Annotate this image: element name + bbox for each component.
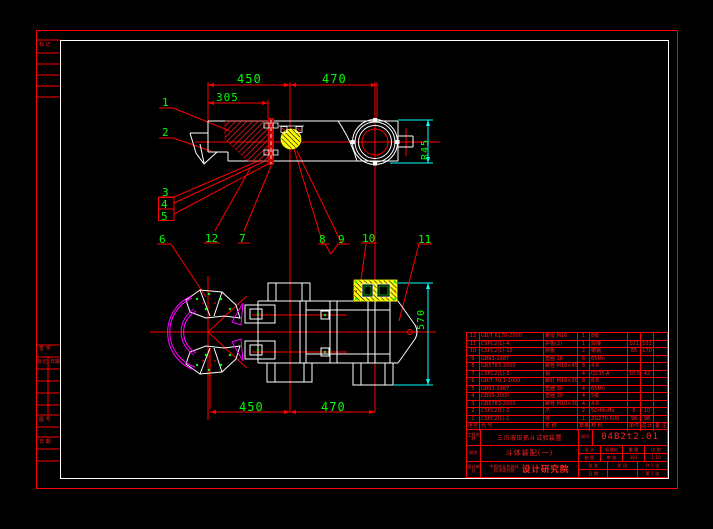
drawing-name: 斗体装配(一) xyxy=(481,446,579,461)
parts-list-cell: CSPC2(1)-2 xyxy=(480,408,544,415)
parts-list-cell: 98 xyxy=(641,416,654,423)
callout-9: 9 xyxy=(338,233,345,246)
drawing-number: 04B2t2.01 xyxy=(593,430,667,445)
parts-list-cell: 8 xyxy=(578,356,590,363)
parts-list-cell: 4 xyxy=(578,401,590,408)
parts-list-cell: GB/T 6170-2000 xyxy=(480,333,544,340)
parts-list-cell: 1 xyxy=(467,416,480,423)
strip-label-top: 标 记 xyxy=(39,43,51,48)
parts-list-row: 12GB/T 6170-2000螺母 M1618级 xyxy=(467,333,667,341)
parts-list-cell: 8.8 xyxy=(590,378,628,385)
sheet-cell: 共 1 张 xyxy=(638,462,667,469)
parts-list-cell xyxy=(654,393,667,400)
drawing-name-label: 图名 xyxy=(467,446,481,461)
parts-list-cell: 5CrMnMo xyxy=(590,408,628,415)
parts-list-cell: CSPC2(1)-4 xyxy=(480,341,544,348)
parts-list-cell: 垫圈 30 xyxy=(544,393,578,400)
parts-list-cell: 98 xyxy=(628,416,641,423)
parts-list-cell xyxy=(628,401,641,408)
sign-cell: 比 例 xyxy=(645,446,667,453)
callout-6: 6 xyxy=(159,233,166,246)
parts-list-row: 10CSPC2(1)-10侧板2铸钢85170 xyxy=(467,348,667,356)
parts-list-cell: 5 xyxy=(467,386,480,393)
parts-list-cell xyxy=(654,356,667,363)
parts-list-cell: 2 xyxy=(578,408,590,415)
parts-list-cell: 3 xyxy=(467,401,480,408)
parts-list-row: 5GB93-1987垫圈 30465Mn xyxy=(467,386,667,394)
strip-label-date1: 日期 xyxy=(50,360,60,365)
sign-cell: 重 量 xyxy=(623,446,645,453)
parts-list-cell: 9 xyxy=(467,356,480,363)
parts-list-row: 4GB95-2000垫圈 3045级 xyxy=(467,393,667,401)
callout-5: 5 xyxy=(161,210,168,223)
parts-list-cell: 4 xyxy=(467,393,480,400)
parts-list-cell: 螺钉 M16×30 xyxy=(544,378,578,385)
sheet-cell: 批 准 xyxy=(579,462,608,469)
parts-list-cell: 4 xyxy=(578,386,590,393)
parts-list-row: 3GB5783-2000螺栓 M10×3044.8 xyxy=(467,401,667,409)
unit-label: 设计单位 xyxy=(467,462,481,477)
company-small: 中国农业机械化 科学研究院 xyxy=(490,465,519,474)
parts-list-cell xyxy=(654,408,667,415)
parts-list-cell: GB95-2000 xyxy=(480,393,544,400)
dim-305: 305 xyxy=(216,91,239,104)
parts-list-cell xyxy=(641,386,654,393)
parts-list-cell: 8 xyxy=(578,363,590,370)
title-block: 工程名称 三爪液压抓斗试验装置 图号 04B2t2.01 图名 斗体装配(一) … xyxy=(466,430,668,478)
callout-12: 12 xyxy=(205,232,218,245)
parts-list-row: 1CSPC2(1)-1体1ZG270-5009898 xyxy=(467,416,667,424)
sheet-cell: 阶 段 xyxy=(608,462,637,469)
callout-10: 10 xyxy=(362,232,375,245)
parts-list-cell xyxy=(641,393,654,400)
sign-cell: 制 图 xyxy=(579,454,601,461)
parts-list-cell: 4 xyxy=(578,393,590,400)
parts-list-cell: 5级 xyxy=(590,393,628,400)
parts-list-cell xyxy=(628,333,641,340)
parts-list-cell: 65Mn xyxy=(590,386,628,393)
parts-list-cell xyxy=(654,333,667,340)
parts-list-row: 2CSPC2(1)-2爪25CrMnMo510 xyxy=(467,408,667,416)
parts-list-cell: 4.8 xyxy=(590,363,628,370)
parts-list-cell xyxy=(654,348,667,355)
dim-570: 570 xyxy=(416,309,427,330)
parts-list-row: 6GB/T 70.1-2000螺钉 M16×3088.8 xyxy=(467,378,667,386)
sign-cell: 设 计 xyxy=(579,446,601,453)
parts-list-cell xyxy=(641,333,654,340)
parts-list-cell: 螺母 M16 xyxy=(544,333,578,340)
parts-list-cell: 85 xyxy=(628,348,641,355)
parts-list-cell: CSPC2(1)-1 xyxy=(480,416,544,423)
parts-list-cell xyxy=(654,386,667,393)
parts-list-row: 8GB5783-2000螺栓 M16×4584.8 xyxy=(467,363,667,371)
parts-list-row: 11CSPC2(1)-4护板(2)1焊接101101 xyxy=(467,341,667,349)
callout-11: 11 xyxy=(418,233,431,246)
parts-list-cell xyxy=(654,416,667,423)
parts-list-cell xyxy=(628,356,641,363)
parts-list-cell xyxy=(654,401,667,408)
parts-list-cell xyxy=(628,393,641,400)
parts-list-cell xyxy=(641,401,654,408)
parts-list-cell: 4 xyxy=(578,371,590,378)
dim-r45: R45 xyxy=(420,139,431,160)
parts-list-cell: 42 xyxy=(641,371,654,378)
parts-list-cell: 垫圈 16 xyxy=(544,356,578,363)
parts-list-cell: GB5783-2000 xyxy=(480,401,544,408)
parts-list-cell: 5 xyxy=(628,408,641,415)
sheet-cell: 日 期 xyxy=(579,470,608,477)
parts-list-cell: 101 xyxy=(628,341,641,348)
parts-list-cell: GB93-1987 xyxy=(480,386,544,393)
parts-list-cell: 10.5 xyxy=(628,371,641,378)
parts-list-cell: 8 xyxy=(467,363,480,370)
parts-list-cell: 侧板 xyxy=(544,348,578,355)
parts-list-cell: 65Mn xyxy=(590,356,628,363)
parts-list-cell xyxy=(641,356,654,363)
drawing-no-label: 图号 xyxy=(579,430,593,445)
parts-list-cell: 体 xyxy=(544,416,578,423)
scale-value: 1:10 xyxy=(645,454,667,461)
company-big: 设计研究院 xyxy=(522,463,570,475)
parts-list-cell: 铸钢 xyxy=(590,348,628,355)
parts-list-cell xyxy=(641,363,654,370)
parts-list-cell: 垫圈 30 xyxy=(544,386,578,393)
crosshatch-block xyxy=(225,118,278,165)
strip-label-mark: 标记 xyxy=(37,360,47,365)
parts-list-cell xyxy=(641,378,654,385)
dim-470-bottom: 470 xyxy=(321,400,346,414)
dim-450-bottom: 450 xyxy=(239,400,264,414)
parts-list-cell: 1 xyxy=(578,333,590,340)
parts-list-cell: 101 xyxy=(641,341,654,348)
callout-2: 2 xyxy=(162,126,169,139)
parts-list-cell: GB/T 70.1-2000 xyxy=(480,378,544,385)
callout-7: 7 xyxy=(239,232,246,245)
parts-list-cell: GB93-1987 xyxy=(480,356,544,363)
parts-list-cell: 爪 xyxy=(544,408,578,415)
sheet-cell xyxy=(608,470,637,477)
company-cell: 中国农业机械化 科学研究院 设计研究院 xyxy=(481,462,579,477)
parts-list-cell: 1 xyxy=(578,416,590,423)
parts-list-cell: 1 xyxy=(578,341,590,348)
parts-list-cell: 护板(2) xyxy=(544,341,578,348)
sign-cell: 标准化 xyxy=(601,446,623,453)
callout-1: 1 xyxy=(162,96,169,109)
parts-list-cell xyxy=(654,341,667,348)
sign-cell: 审 核 xyxy=(601,454,623,461)
parts-list-cell: 2 xyxy=(578,348,590,355)
parts-list-cell: 12 xyxy=(467,333,480,340)
parts-list-cell: 螺栓 M16×45 xyxy=(544,363,578,370)
cad-canvas[interactable]: 450 470 305 R45 450 470 570 1 2 3 4 5 6 … xyxy=(0,0,713,529)
parts-list-cell xyxy=(628,378,641,385)
signature-grid: 设 计 标准化 重 量 比 例 制 图 审 核 391 1:10 xyxy=(579,446,667,461)
dim-450-top: 450 xyxy=(237,72,262,86)
strip-label-drawingno: 图 号 xyxy=(39,418,51,423)
parts-list-row: 9GB93-1987垫圈 16865Mn xyxy=(467,356,667,364)
parts-list-cell: 170 xyxy=(641,348,654,355)
parts-list: 12GB/T 6170-2000螺母 M1618级11CSPC2(1)-4护板(… xyxy=(466,332,668,430)
parts-list-cell: GB5783-2000 xyxy=(480,363,544,370)
parts-list-cell: 焊接 xyxy=(590,341,628,348)
parts-list-cell: 10 xyxy=(641,408,654,415)
piston-circle xyxy=(279,126,304,149)
counterweight-block xyxy=(354,280,397,301)
parts-list-cell: 4.8 xyxy=(590,401,628,408)
parts-list-cell: 8 xyxy=(578,378,590,385)
callout-8: 8 xyxy=(319,233,326,246)
parts-list-cell: 2 xyxy=(467,408,480,415)
parts-list-cell: 11 xyxy=(467,341,480,348)
parts-list-cell xyxy=(654,363,667,370)
parts-list-cell: CSPC2(1)-10 xyxy=(480,348,544,355)
project-label: 工程名称 xyxy=(467,430,481,445)
project-name: 三爪液压抓斗试验装置 xyxy=(481,430,579,445)
sheet-grid: 批 准 阶 段 共 1 张 日 期 第 1 张 xyxy=(579,462,667,477)
parts-list-cell: 螺栓 M10×30 xyxy=(544,401,578,408)
parts-list-cell: ZG270-500 xyxy=(590,416,628,423)
parts-list-cell: 销 xyxy=(544,371,578,378)
parts-list-cell: 8级 xyxy=(590,333,628,340)
strip-label-sign: 签 字 xyxy=(39,347,51,352)
parts-list-cell: 10 xyxy=(467,348,480,355)
parts-list-cell xyxy=(628,363,641,370)
parts-list-cell: 6 xyxy=(467,378,480,385)
strip-label-date2: 日 期 xyxy=(39,440,51,445)
sheet-cell: 第 1 张 xyxy=(638,470,667,477)
parts-list-cell xyxy=(654,378,667,385)
dim-470-top: 470 xyxy=(322,72,347,86)
parts-list-cell: CSPC2(1)-3 xyxy=(480,371,544,378)
parts-list-cell: Q235-A xyxy=(590,371,628,378)
parts-list-row: 7CSPC2(1)-3销4Q235-A10.542 xyxy=(467,371,667,379)
parts-list-cell xyxy=(628,386,641,393)
parts-list-cell: 7 xyxy=(467,371,480,378)
weight-value: 391 xyxy=(623,454,645,461)
parts-list-cell xyxy=(654,371,667,378)
parts-list-rows: 12GB/T 6170-2000螺母 M1618级11CSPC2(1)-4护板(… xyxy=(467,333,667,431)
